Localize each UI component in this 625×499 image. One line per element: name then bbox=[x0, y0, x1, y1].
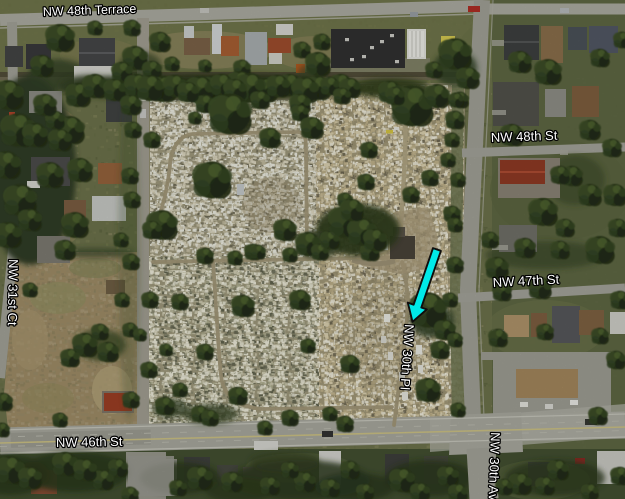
svg-text:NW 30th Av: NW 30th Av bbox=[486, 432, 503, 499]
svg-text:NW 31st Ct: NW 31st Ct bbox=[5, 259, 21, 326]
svg-text:NW 46th St: NW 46th St bbox=[56, 434, 123, 450]
svg-text:NW 48th St: NW 48th St bbox=[491, 128, 558, 145]
